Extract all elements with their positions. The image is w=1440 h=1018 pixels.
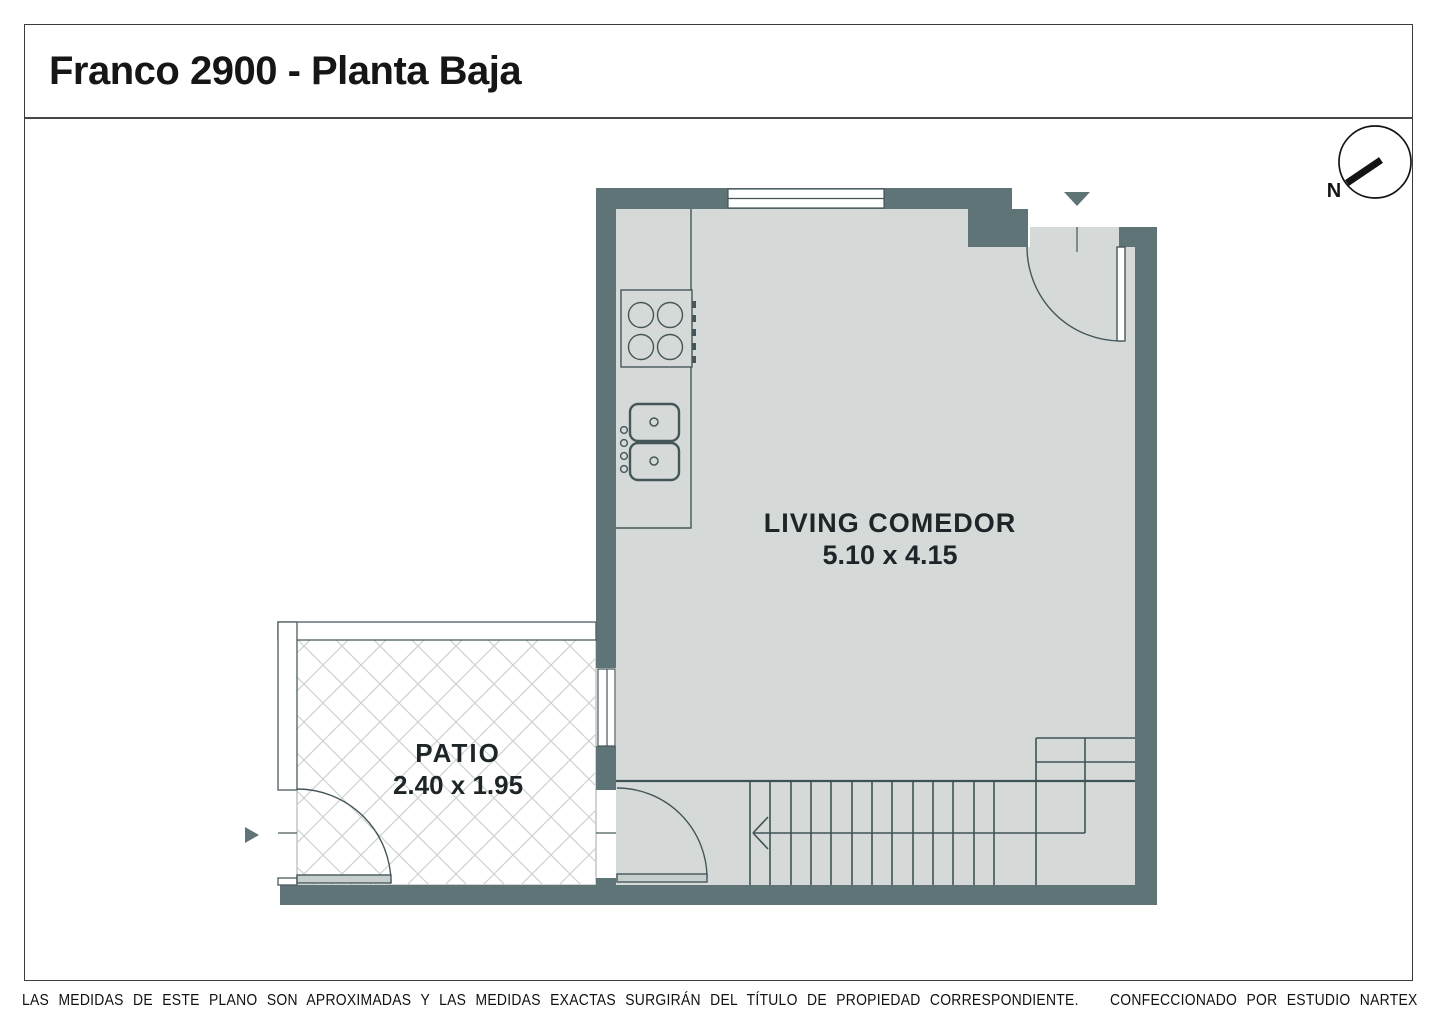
stove [621,290,696,367]
left-wall-lower [596,878,616,885]
footer-disclaimer: LAS MEDIDAS DE ESTE PLANO SON APROXIMADA… [22,992,1079,1010]
floor-plan: LIVING COMEDOR 5.10 x 4.15 PATIO 2.40 x … [0,0,1440,1018]
entry-arrow-icon [1064,192,1090,206]
north-compass-icon: N [1327,126,1411,202]
entry-step-wall [968,209,1028,247]
patio-top-wall [278,622,596,640]
footer: LAS MEDIDAS DE ESTE PLANO SON APROXIMADA… [0,989,1440,1015]
patio-window [598,669,615,746]
right-wall [1135,227,1157,905]
bottom-wall [280,885,1157,905]
patio-door-leaf [297,875,391,883]
top-window [728,189,884,208]
north-label: N [1327,180,1341,202]
patio-left-wall-lower [278,878,297,885]
left-wall-upper [596,209,616,668]
left-wall-mid [596,746,616,790]
patio-label: PATIO [415,738,501,768]
footer-credit: CONFECCIONADO POR ESTUDIO NARTEX [1110,992,1418,1010]
corridor-door-leaf [617,874,707,882]
living-room-label: LIVING COMEDOR [764,508,1017,538]
patio-left-wall-upper [278,622,297,790]
patio-arrow-icon [245,827,259,843]
patio-dimensions: 2.40 x 1.95 [393,770,523,800]
entry-door-leaf [1117,247,1125,341]
living-room-dimensions: 5.10 x 4.15 [822,540,957,570]
